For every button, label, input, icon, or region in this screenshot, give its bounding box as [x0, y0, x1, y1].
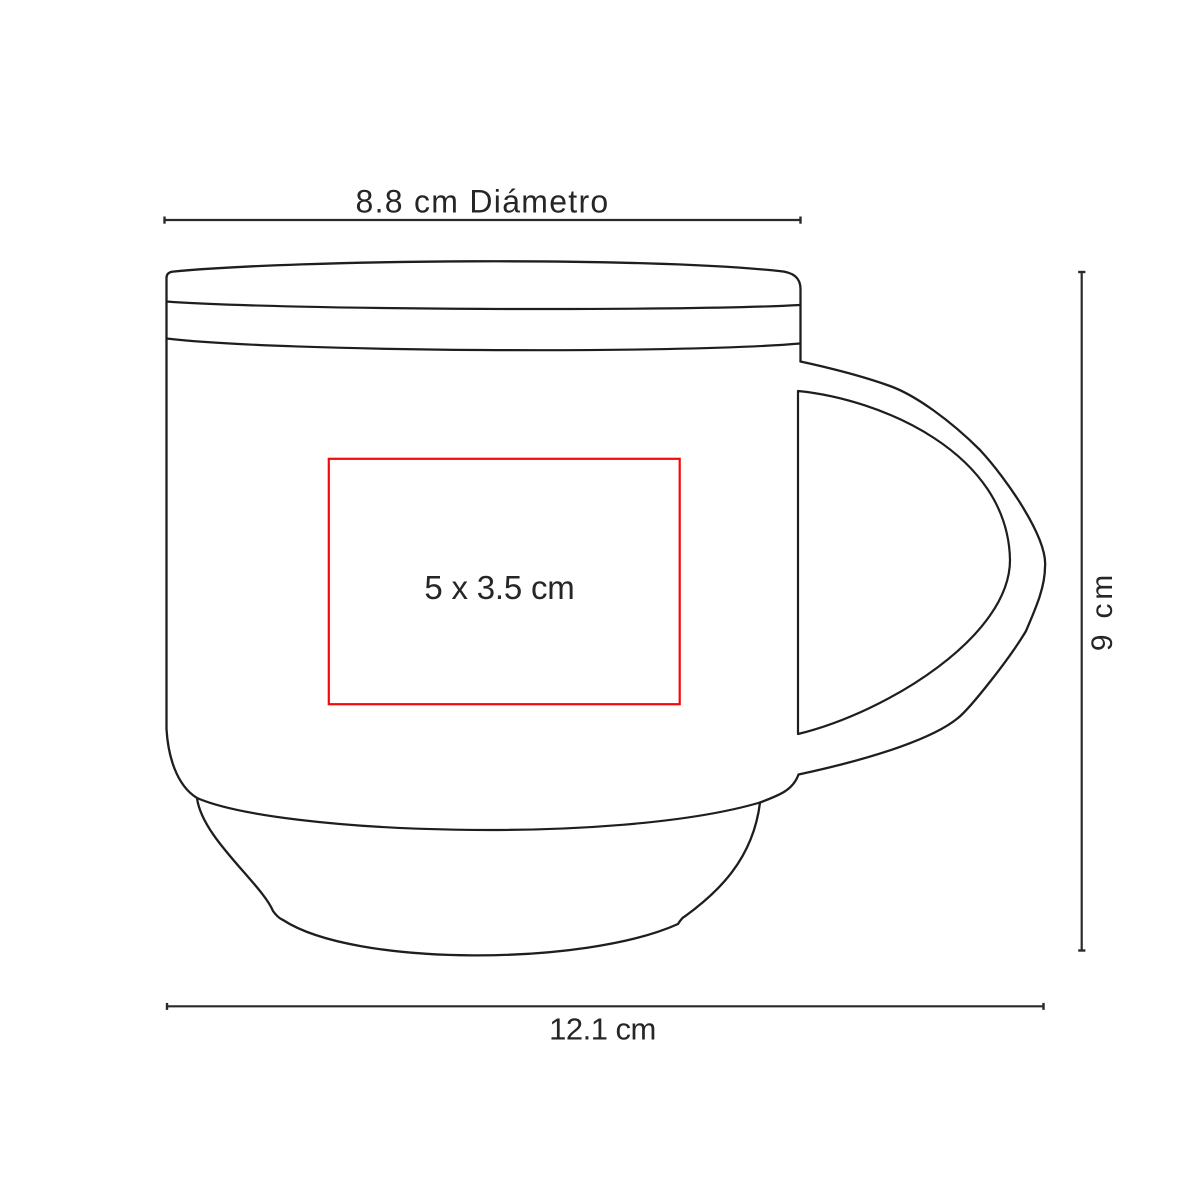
svg-text:12.1 cm: 12.1 cm: [549, 1012, 656, 1047]
svg-text:8.8 cm Diámetro: 8.8 cm Diámetro: [356, 184, 610, 220]
svg-text:9 cm: 9 cm: [1086, 571, 1119, 651]
svg-text:5 x 3.5 cm: 5 x 3.5 cm: [424, 569, 574, 606]
